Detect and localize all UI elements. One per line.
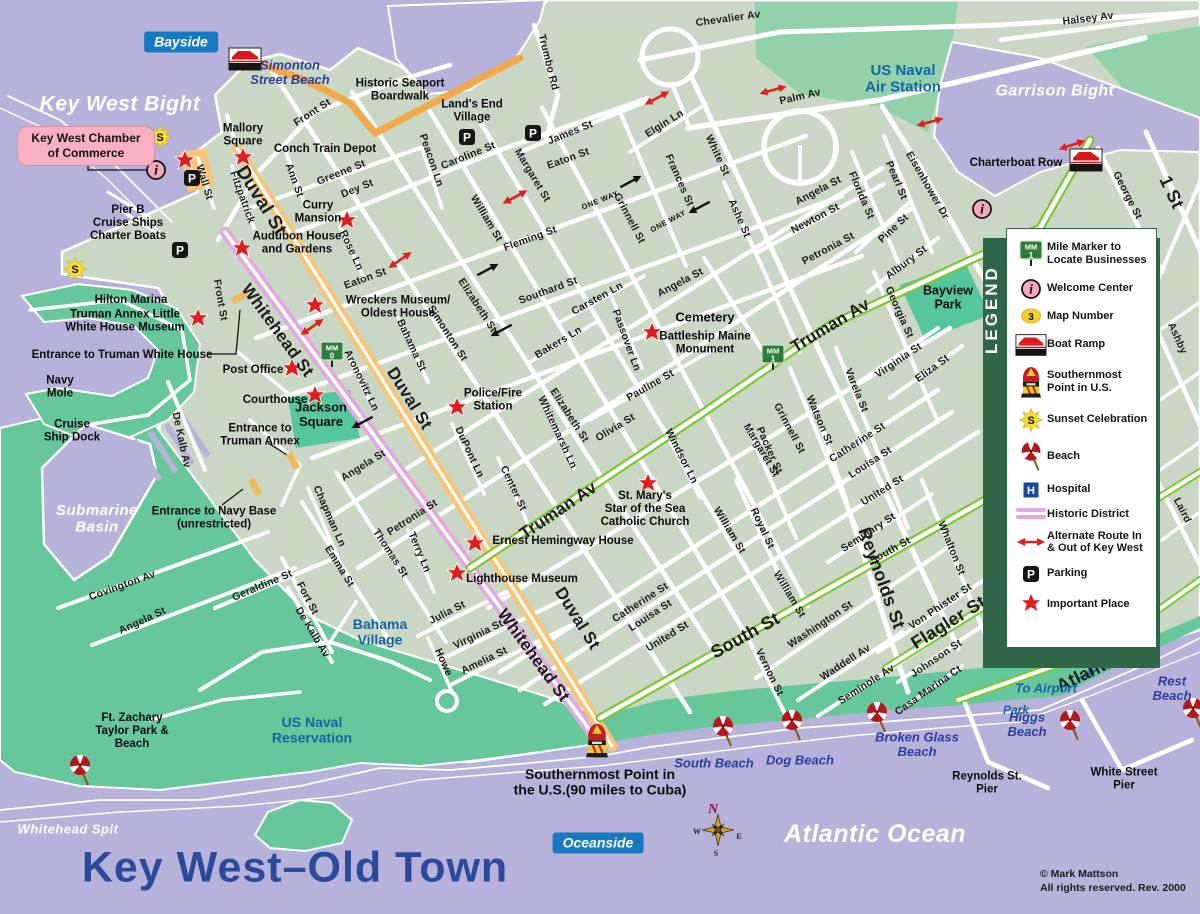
legend-item-parking: Parking: [1015, 564, 1152, 584]
chamber-line1: Key West Chamber: [20, 131, 152, 146]
map-title: Key West–Old Town: [82, 844, 508, 893]
poi-label: Cemetery: [675, 310, 735, 325]
water-label: Whitehead Spit: [18, 822, 119, 837]
poi-label: JacksonSquare: [295, 399, 347, 429]
beach-icon: [1015, 440, 1047, 472]
poi-label: Truman Annex LittleWhite House Museum: [65, 309, 184, 334]
legend-item-beach: Beach: [1015, 440, 1152, 472]
svg-text:1: 1: [1029, 251, 1034, 260]
poi-label: Entrance toTruman Annex: [220, 423, 300, 448]
poi-label: MallorySquare: [223, 123, 264, 148]
legend-item-label: Important Place: [1047, 598, 1130, 611]
legend-title: LEGEND: [982, 245, 1006, 375]
mile-marker-number: 1: [771, 355, 776, 364]
legend-item-hospital: Hospital: [1015, 481, 1152, 499]
legend-item-alt-route: Alternate Route In & Out of Key West: [1015, 530, 1152, 556]
legend-item-star: Important Place: [1015, 592, 1152, 616]
beach-label: HiggsBeach: [1007, 709, 1046, 739]
legend-item-label: Sunset Celebration: [1047, 413, 1147, 426]
legend-item-label: Alternate Route In & Out of Key West: [1047, 530, 1152, 556]
parking-icon: [172, 242, 188, 258]
bayside-badge: Bayside: [144, 32, 218, 53]
poi-label: Charterboat Row: [970, 157, 1063, 169]
mile-marker-icon: 1: [1015, 239, 1047, 269]
attribution-line1: © Mark Mattson: [1040, 867, 1186, 881]
poi-label: Ernest Hemingway House: [492, 535, 633, 547]
transit-label: To Airport: [1015, 681, 1078, 696]
legend-item-historic: Historic District: [1015, 507, 1152, 521]
beach-label: South Beach: [674, 756, 754, 771]
legend-item-label: Mile Marker to Locate Businesses: [1047, 241, 1152, 267]
historic-icon: [1015, 507, 1047, 521]
water-label: Garrison Bight: [995, 83, 1114, 100]
poi-label: Entrance to Truman White House: [32, 349, 213, 361]
legend-item-label: Boat Ramp: [1047, 338, 1105, 351]
alt-route-icon: [1015, 535, 1047, 549]
parking-icon: [1015, 564, 1047, 584]
legend-item-sunset: Sunset Celebration: [1015, 408, 1152, 432]
star-icon: [1015, 592, 1047, 616]
hospital-icon: [1015, 481, 1047, 499]
legend-item-welcome: Welcome Center: [1015, 278, 1152, 300]
legend-item-label: Beach: [1047, 450, 1080, 463]
poi-label: Audubon Houseand Gardens: [253, 231, 342, 256]
legend-item-label: Welcome Center: [1047, 282, 1133, 295]
boat-ramp-icon: [1015, 333, 1047, 357]
legend-item-mile-marker: 1Mile Marker to Locate Businesses: [1015, 239, 1152, 269]
beach-label: Dog Beach: [766, 753, 834, 768]
poi-label: NavyMole: [46, 375, 74, 400]
legend-item-label: Southernmost Point in U.S.: [1047, 369, 1152, 395]
beach-label: SimontonStreet Beach: [250, 57, 330, 87]
parking-icon: [525, 125, 541, 141]
buoy-icon: [1015, 365, 1047, 399]
water-label: Key West Bight: [40, 92, 201, 115]
poi-label: Lighthouse Museum: [466, 573, 578, 585]
boat-ramp-icon: [229, 48, 261, 70]
welcome-icon: [1015, 278, 1047, 300]
key-west-map: P S i MM: [0, 0, 1200, 914]
parking-icon: [459, 129, 475, 145]
area-label: BahamaVillage: [353, 616, 408, 648]
legend-item-boat-ramp: Boat Ramp: [1015, 333, 1152, 357]
legend-item-label: Map Number: [1047, 310, 1114, 323]
poi-label: Conch Train Depot: [274, 143, 376, 155]
attribution: © Mark Mattson All rights reserved. Rev.…: [1040, 867, 1186, 895]
poi-label: Post Office: [223, 364, 284, 376]
legend-item-label: Parking: [1047, 567, 1087, 580]
poi-label: Hilton Marina: [95, 294, 168, 306]
sunset-icon: [1015, 408, 1047, 432]
chamber-line2: of Commerce: [20, 146, 152, 161]
legend-item-buoy: Southernmost Point in U.S.: [1015, 365, 1152, 399]
chamber-of-commerce-callout: Key West Chamber of Commerce: [17, 126, 155, 166]
attribution-line2: All rights reserved. Rev. 2000: [1040, 881, 1186, 895]
beach-label: RestBeach: [1152, 673, 1191, 703]
map-number-icon: 3: [1015, 308, 1047, 324]
welcome-center-icon: [973, 200, 991, 218]
mile-marker-number: 0: [330, 352, 335, 361]
boat-ramp-icon: [1070, 149, 1102, 171]
compass-west-label: W: [693, 827, 701, 836]
area-label: US NavalReservation: [272, 714, 352, 746]
legend-items: 1Mile Marker to Locate BusinessesWelcome…: [1015, 239, 1152, 616]
sunset-celebration-icon: [64, 258, 86, 280]
svg-text:3: 3: [1028, 312, 1034, 323]
legend-item-label: Historic District: [1047, 508, 1129, 521]
legend-panel: 1Mile Marker to Locate BusinessesWelcome…: [1006, 228, 1157, 648]
southernmost-point-label: Southernmost Point inthe U.S.(90 miles t…: [514, 766, 687, 798]
legend-item-map-number: 3Map Number: [1015, 308, 1152, 324]
area-label: US NavalAir Station: [865, 62, 941, 96]
water-label: Atlantic Ocean: [783, 820, 966, 848]
compass-east-label: E: [736, 832, 741, 841]
oceanside-badge: Oceanside: [553, 833, 644, 854]
compass-north-label: N: [707, 802, 719, 817]
compass-south-label: S: [714, 849, 719, 858]
legend-item-label: Hospital: [1047, 483, 1090, 496]
